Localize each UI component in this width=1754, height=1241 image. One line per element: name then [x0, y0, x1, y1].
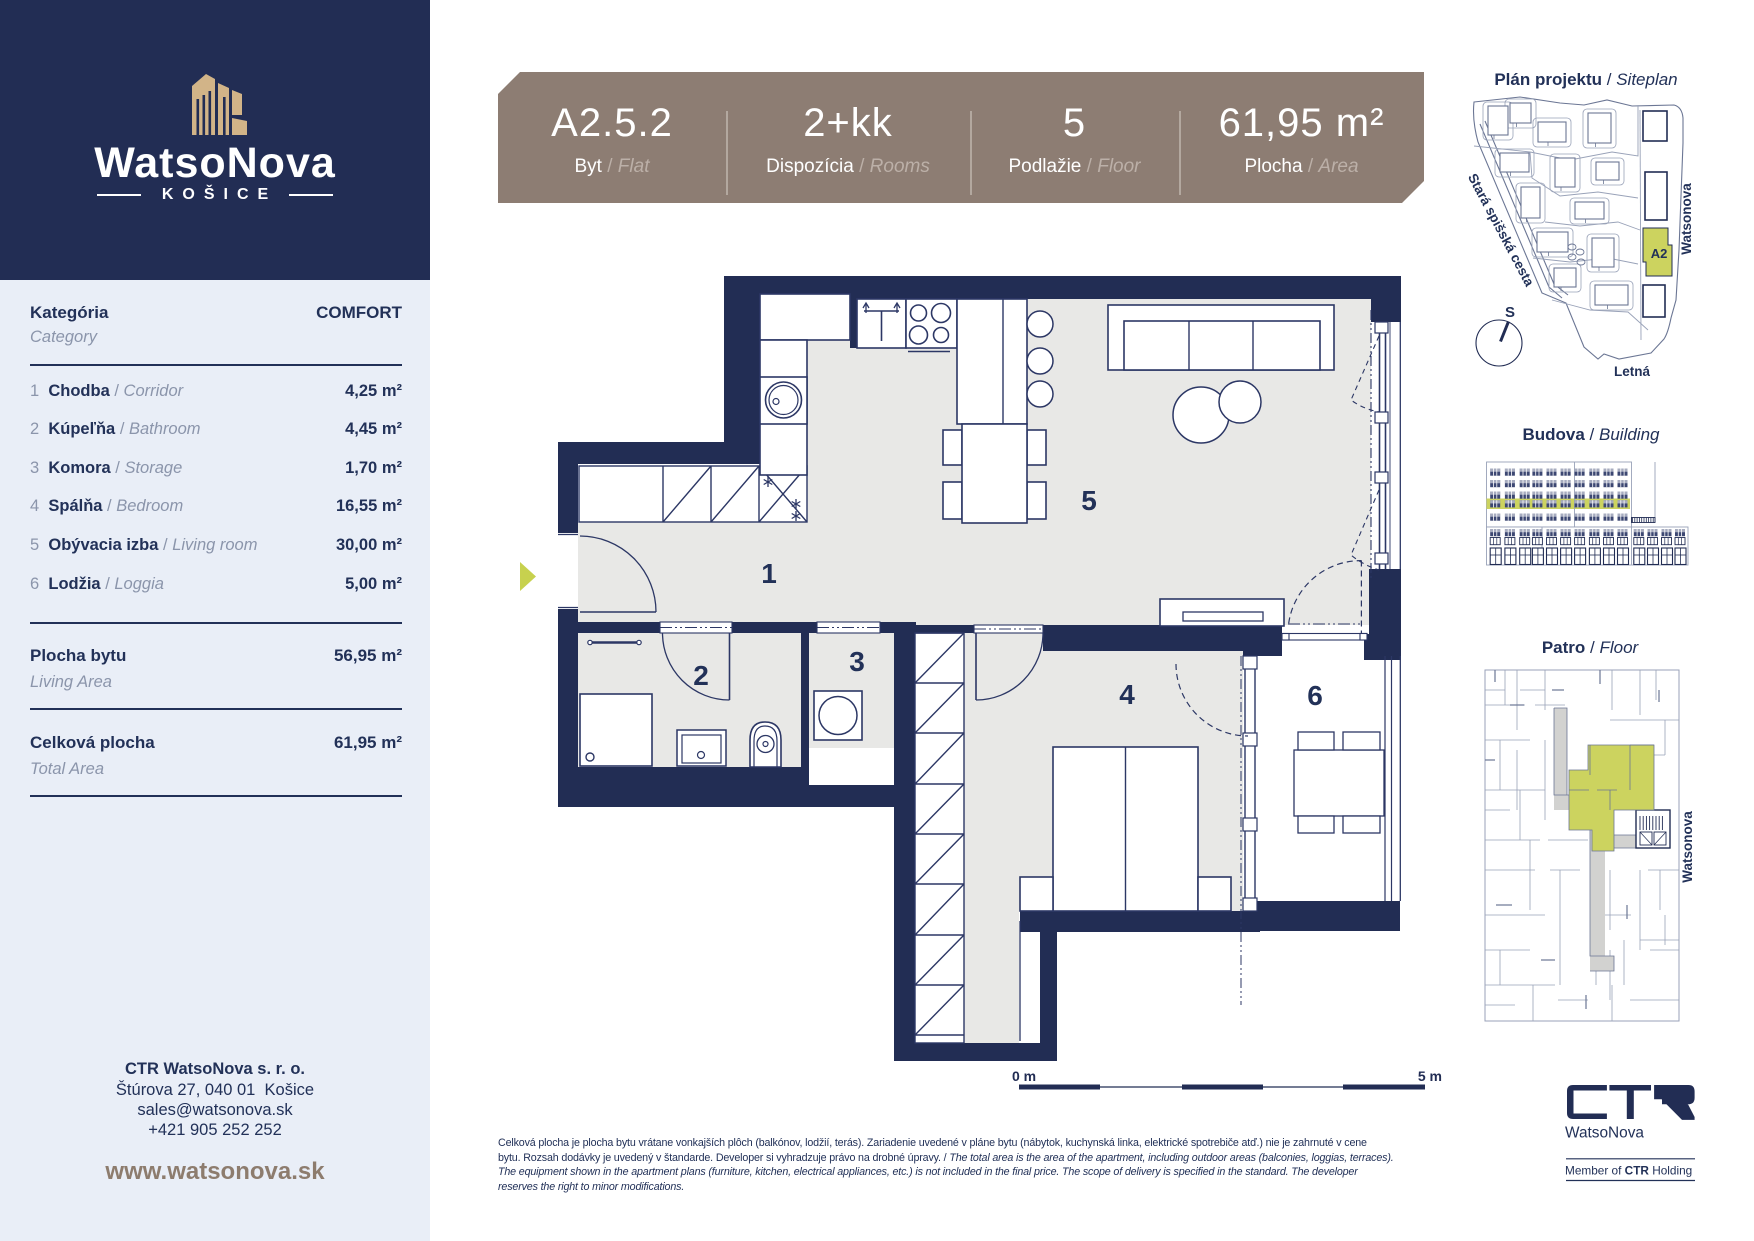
svg-text:2: 2 — [693, 660, 709, 691]
svg-text:3: 3 — [849, 646, 865, 677]
svg-text:Letná: Letná — [1614, 364, 1650, 379]
svg-text:6: 6 — [1307, 680, 1323, 711]
svg-text:Watsonova: Watsonova — [1679, 183, 1694, 255]
svg-text:Budova / Building: Budova / Building — [1522, 425, 1660, 444]
svg-text:1: 1 — [761, 558, 777, 589]
svg-text:Plán projektu / Siteplan: Plán projektu / Siteplan — [1494, 70, 1677, 89]
svg-text:5: 5 — [1081, 485, 1097, 516]
svg-text:5 m: 5 m — [1418, 1068, 1442, 1084]
svg-text:0 m: 0 m — [1012, 1068, 1036, 1084]
svg-text:WatsoNova: WatsoNova — [1565, 1125, 1644, 1142]
svg-text:Patro / Floor: Patro / Floor — [1542, 638, 1640, 657]
svg-text:S: S — [1505, 304, 1515, 321]
svg-text:Member of CTR Holding: Member of CTR Holding — [1565, 1164, 1692, 1178]
svg-text:A2: A2 — [1651, 246, 1668, 261]
svg-text:4: 4 — [1119, 679, 1135, 710]
svg-text:Watsonova: Watsonova — [1680, 811, 1695, 883]
